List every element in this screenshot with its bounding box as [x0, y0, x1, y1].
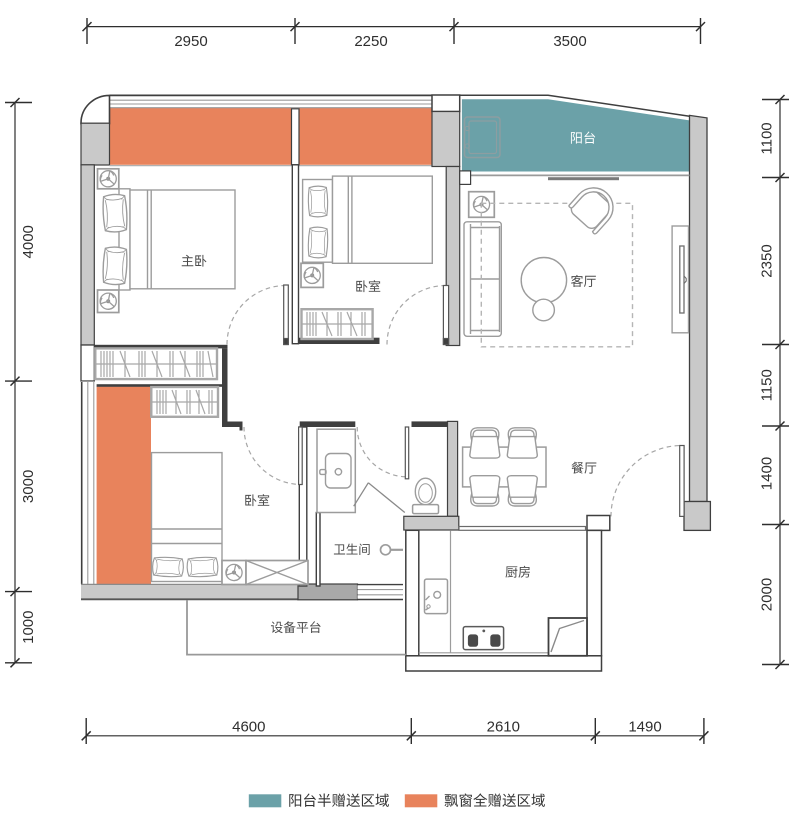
svg-text:2250: 2250 [354, 33, 387, 50]
svg-text:3500: 3500 [553, 33, 586, 50]
svg-text:2950: 2950 [174, 33, 207, 50]
svg-text:2610: 2610 [487, 719, 520, 736]
svg-text:2350: 2350 [759, 244, 776, 277]
svg-text:1150: 1150 [759, 369, 776, 401]
svg-text:1000: 1000 [20, 611, 37, 644]
svg-text:3000: 3000 [20, 470, 37, 503]
svg-text:1400: 1400 [759, 457, 776, 490]
svg-text:2000: 2000 [759, 578, 776, 611]
svg-text:1490: 1490 [628, 719, 661, 736]
svg-text:4600: 4600 [232, 719, 265, 736]
svg-text:1100: 1100 [759, 122, 776, 154]
svg-text:4000: 4000 [20, 225, 37, 258]
